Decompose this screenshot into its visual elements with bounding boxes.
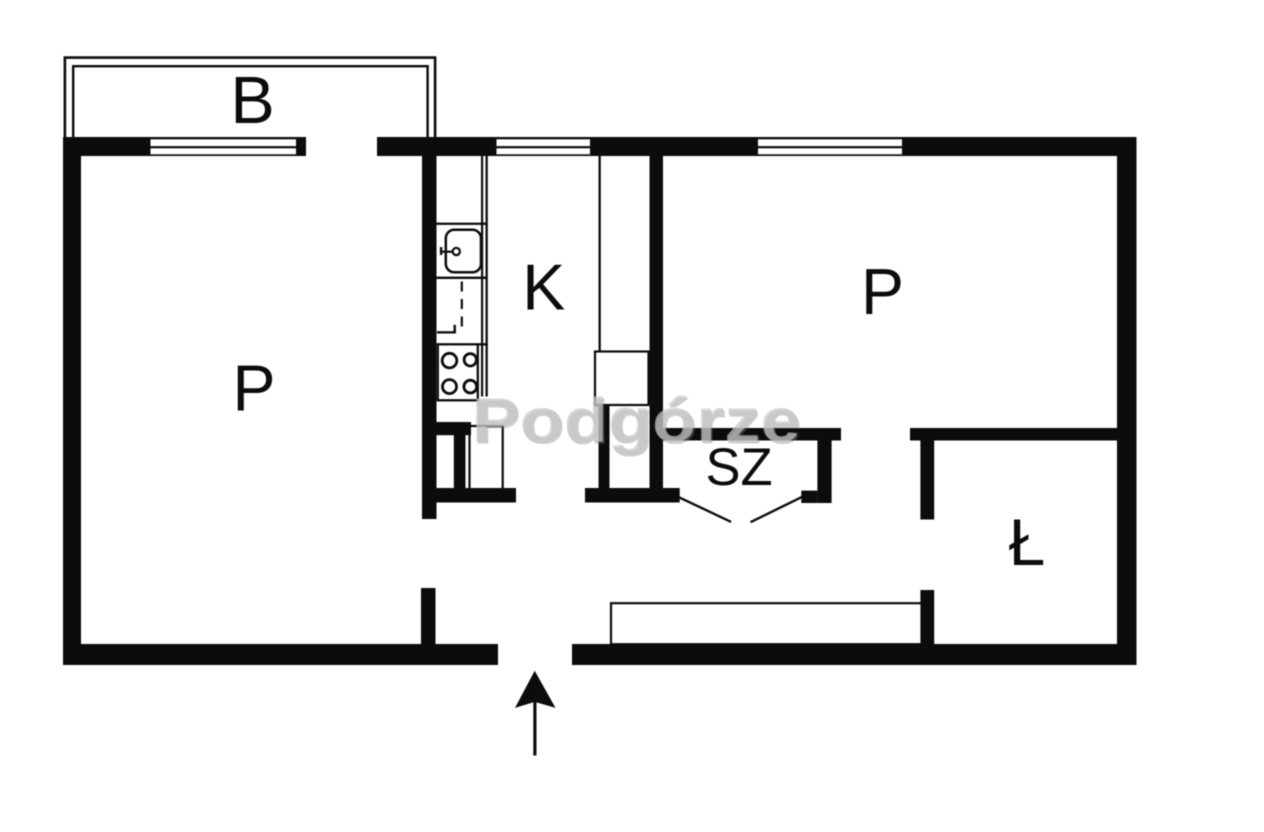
- svg-text:P: P: [232, 353, 275, 425]
- svg-text:K: K: [522, 252, 565, 324]
- svg-text:B: B: [230, 64, 274, 138]
- svg-text:Podgórze: Podgórze: [471, 386, 800, 455]
- svg-text:Ł: Ł: [1009, 505, 1046, 579]
- svg-text:P: P: [861, 256, 904, 328]
